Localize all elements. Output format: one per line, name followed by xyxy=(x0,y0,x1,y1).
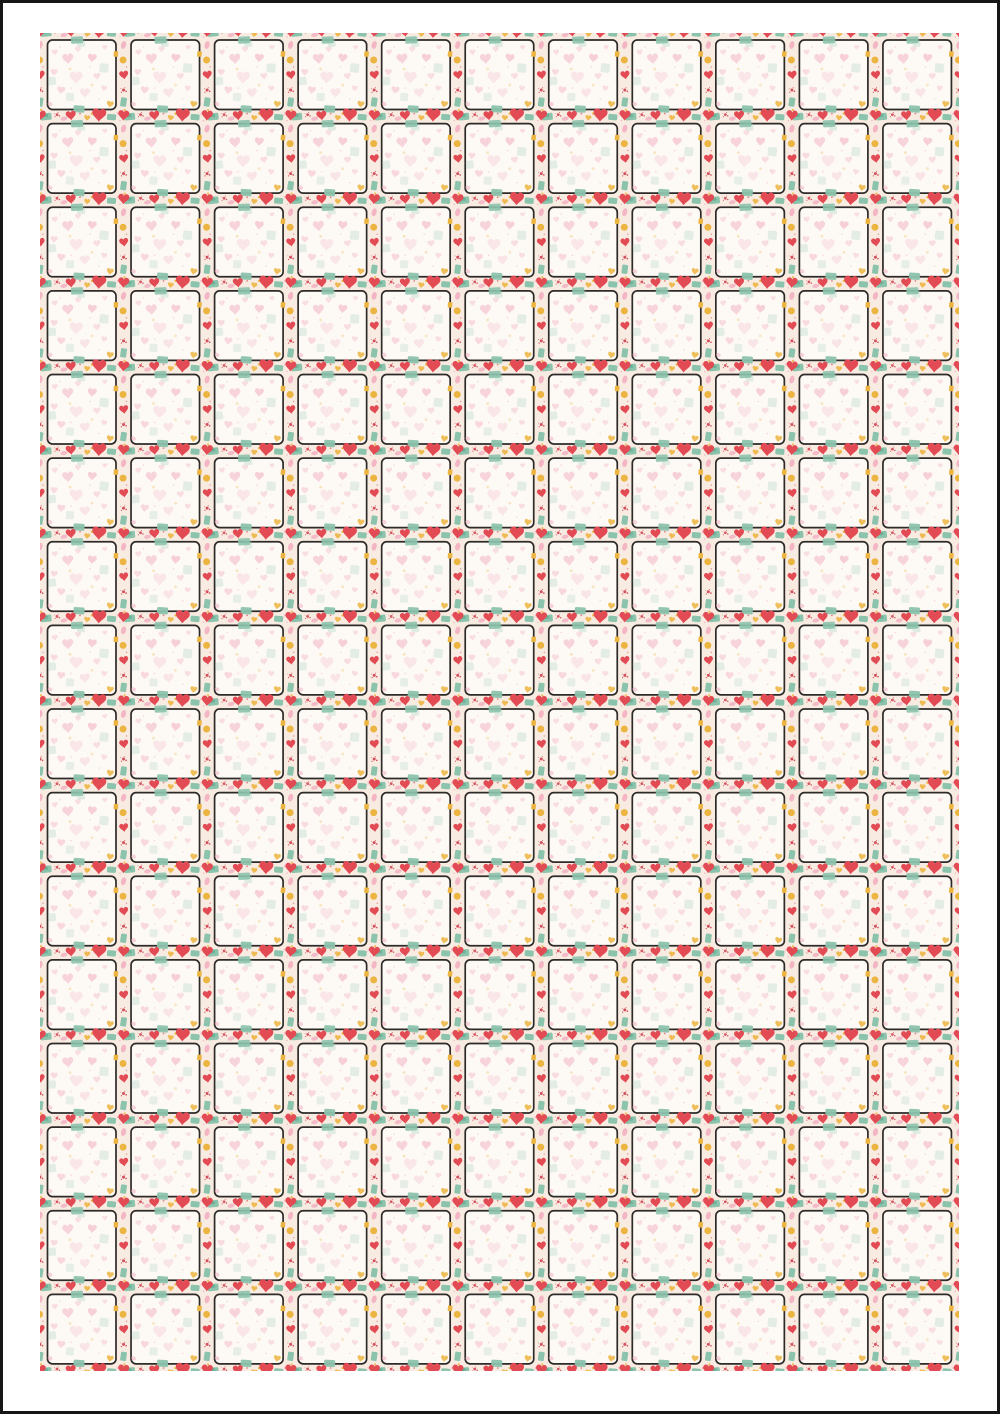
sticker-tile xyxy=(703,33,790,113)
page xyxy=(0,0,1000,1414)
sticker-tile xyxy=(786,33,873,113)
sticker-tile xyxy=(40,33,121,113)
sticker-tile xyxy=(870,33,957,113)
sticker-tile xyxy=(619,33,706,113)
sticker-tile xyxy=(535,33,622,113)
sticker-tile xyxy=(201,33,288,113)
sticker-tile xyxy=(452,33,539,113)
sticker-tile xyxy=(118,33,205,113)
sticker-tile xyxy=(368,33,455,113)
sticker-sheet xyxy=(40,33,959,1371)
sticker-tile xyxy=(285,33,372,113)
